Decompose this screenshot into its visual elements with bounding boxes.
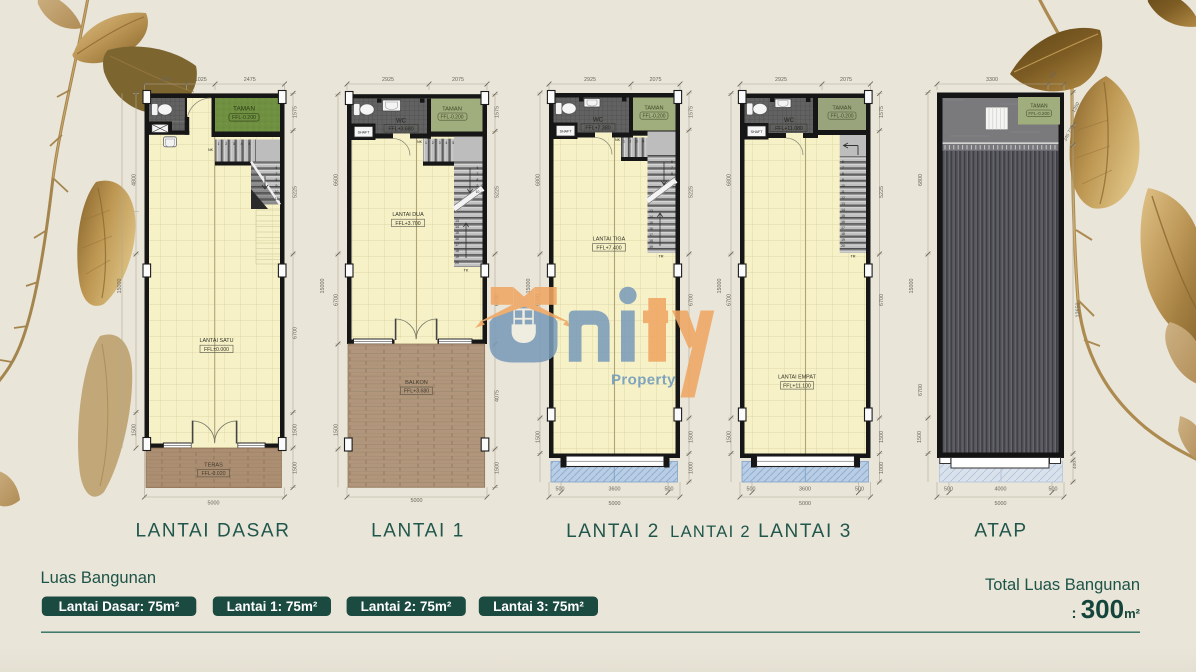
svg-text:16: 16 bbox=[455, 237, 459, 241]
svg-text:15000: 15000 bbox=[909, 279, 915, 294]
svg-text:1500: 1500 bbox=[689, 431, 695, 443]
svg-text:1500: 1500 bbox=[495, 462, 501, 474]
svg-text:LANTAI 2: LANTAI 2 bbox=[566, 521, 660, 542]
svg-text:LANTAI TIGA: LANTAI TIGA bbox=[593, 237, 626, 243]
svg-text:6700: 6700 bbox=[689, 294, 695, 306]
svg-text:9: 9 bbox=[842, 178, 844, 182]
svg-text:17: 17 bbox=[841, 226, 845, 230]
svg-text:TAMAN: TAMAN bbox=[442, 107, 462, 113]
svg-text:3: 3 bbox=[636, 140, 638, 144]
svg-text:FFL+7.380: FFL+7.380 bbox=[585, 125, 610, 131]
svg-text:1025: 1025 bbox=[195, 77, 207, 83]
svg-text:18: 18 bbox=[841, 232, 845, 236]
svg-text:WC: WC bbox=[784, 118, 795, 124]
svg-text:500: 500 bbox=[1049, 487, 1058, 493]
svg-text:WC: WC bbox=[396, 119, 407, 125]
svg-text:1500: 1500 bbox=[535, 431, 541, 443]
svg-text:5225: 5225 bbox=[879, 186, 885, 198]
svg-text:1000: 1000 bbox=[689, 462, 695, 474]
svg-text:6800: 6800 bbox=[535, 174, 541, 186]
svg-text:5225: 5225 bbox=[689, 186, 695, 198]
svg-text:1575: 1575 bbox=[293, 106, 299, 118]
svg-text:12650: 12650 bbox=[1076, 303, 1082, 318]
svg-text:12: 12 bbox=[841, 196, 845, 200]
svg-text:2925: 2925 bbox=[584, 77, 596, 83]
svg-text:5225: 5225 bbox=[495, 186, 501, 198]
svg-text:TAMAN: TAMAN bbox=[644, 106, 663, 112]
svg-text:6: 6 bbox=[671, 160, 673, 164]
svg-text:3300: 3300 bbox=[986, 77, 998, 83]
svg-text:10: 10 bbox=[476, 190, 480, 194]
svg-text:13: 13 bbox=[455, 219, 459, 223]
svg-text:19: 19 bbox=[649, 245, 653, 249]
svg-text:19: 19 bbox=[841, 238, 845, 242]
svg-text:Property: Property bbox=[611, 372, 676, 389]
svg-text:LANTAI 3: LANTAI 3 bbox=[758, 521, 852, 542]
svg-text:LANTAI 2: LANTAI 2 bbox=[670, 523, 751, 541]
svg-text:Lantai 1: 75m²: Lantai 1: 75m² bbox=[227, 599, 318, 614]
svg-text:4075: 4075 bbox=[495, 390, 501, 402]
svg-text:2925: 2925 bbox=[775, 77, 787, 83]
svg-text:6600: 6600 bbox=[333, 174, 339, 186]
svg-text:5000: 5000 bbox=[799, 501, 811, 507]
svg-text:1: 1 bbox=[425, 141, 427, 145]
svg-text:3: 3 bbox=[233, 142, 235, 146]
svg-text:17: 17 bbox=[455, 243, 459, 247]
svg-text:SHAFT: SHAFT bbox=[358, 131, 371, 135]
svg-text:FFL-0.200: FFL-0.200 bbox=[232, 115, 256, 121]
svg-text:2: 2 bbox=[225, 142, 227, 146]
svg-text:6700: 6700 bbox=[333, 294, 339, 306]
svg-text:13: 13 bbox=[841, 202, 845, 206]
svg-text:5000: 5000 bbox=[609, 501, 621, 507]
svg-text:4: 4 bbox=[642, 140, 644, 144]
svg-text:500: 500 bbox=[747, 487, 756, 493]
svg-text:FFL-0.200: FFL-0.200 bbox=[440, 115, 463, 121]
svg-text:500: 500 bbox=[944, 487, 953, 493]
svg-text:20: 20 bbox=[841, 244, 845, 248]
svg-text:4000: 4000 bbox=[995, 487, 1007, 493]
svg-text:6: 6 bbox=[842, 160, 844, 164]
svg-text:4: 4 bbox=[445, 141, 447, 145]
svg-text:8: 8 bbox=[671, 172, 673, 176]
svg-text:FFL+7.400: FFL+7.400 bbox=[596, 245, 621, 251]
svg-text:19: 19 bbox=[455, 255, 459, 259]
svg-text:4800: 4800 bbox=[131, 174, 137, 186]
svg-text:18: 18 bbox=[455, 249, 459, 253]
svg-text:NK: NK bbox=[615, 138, 621, 142]
svg-text:LANTAI SATU: LANTAI SATU bbox=[200, 338, 234, 344]
svg-text:7: 7 bbox=[671, 166, 673, 170]
svg-text:8: 8 bbox=[276, 178, 278, 182]
svg-text:3: 3 bbox=[439, 141, 441, 145]
svg-text:TAMAN: TAMAN bbox=[1030, 104, 1048, 110]
svg-text:TR: TR bbox=[850, 255, 855, 259]
svg-text:SHAFT: SHAFT bbox=[560, 130, 573, 134]
svg-text:5225: 5225 bbox=[293, 186, 299, 198]
svg-text:6700: 6700 bbox=[293, 327, 299, 339]
svg-text:1500: 1500 bbox=[726, 431, 732, 443]
svg-text:14: 14 bbox=[649, 215, 653, 219]
svg-text:FFL+3.700: FFL+3.700 bbox=[395, 221, 420, 227]
svg-text:2475: 2475 bbox=[244, 77, 256, 83]
svg-text:1: 1 bbox=[623, 140, 625, 144]
svg-text:ATAP: ATAP bbox=[974, 521, 1027, 542]
svg-text:1500: 1500 bbox=[293, 424, 299, 436]
svg-text:6700: 6700 bbox=[879, 294, 885, 306]
svg-text:9: 9 bbox=[477, 184, 479, 188]
svg-text:17: 17 bbox=[649, 233, 653, 237]
svg-text:FFL-0.200: FFL-0.200 bbox=[1028, 111, 1050, 116]
svg-text:NK: NK bbox=[417, 140, 423, 144]
svg-text:2925: 2925 bbox=[382, 77, 394, 83]
svg-text:15: 15 bbox=[649, 221, 653, 225]
svg-text:15: 15 bbox=[841, 214, 845, 218]
svg-text:FFL+11.080: FFL+11.080 bbox=[775, 126, 803, 132]
svg-text:1000: 1000 bbox=[879, 462, 885, 474]
svg-text:FFL+3.680: FFL+3.680 bbox=[404, 389, 429, 395]
svg-text:LANTAI DUA: LANTAI DUA bbox=[392, 212, 424, 218]
svg-text:Lantai Dasar: 75m²: Lantai Dasar: 75m² bbox=[59, 599, 180, 614]
svg-text:1500: 1500 bbox=[131, 424, 137, 436]
svg-text:16: 16 bbox=[841, 220, 845, 224]
svg-text:11: 11 bbox=[275, 197, 279, 201]
svg-text:1500: 1500 bbox=[333, 424, 339, 436]
svg-text:2075: 2075 bbox=[650, 77, 662, 83]
svg-text:14: 14 bbox=[841, 208, 845, 212]
svg-text:15000: 15000 bbox=[117, 279, 123, 294]
svg-text:1500: 1500 bbox=[917, 431, 923, 443]
svg-text:LANTAI 1: LANTAI 1 bbox=[371, 521, 465, 542]
svg-text:1575: 1575 bbox=[879, 106, 885, 118]
svg-text:15000: 15000 bbox=[320, 279, 326, 294]
svg-text:10: 10 bbox=[275, 190, 279, 194]
svg-text:400: 400 bbox=[1072, 461, 1078, 469]
svg-text:FFL-0.020: FFL-0.020 bbox=[202, 471, 226, 477]
svg-text:5000: 5000 bbox=[411, 498, 423, 504]
svg-text:1500: 1500 bbox=[160, 77, 172, 83]
svg-text:6700: 6700 bbox=[726, 294, 732, 306]
svg-text:LANTAI DASAR: LANTAI DASAR bbox=[135, 521, 290, 542]
svg-text:1575: 1575 bbox=[495, 106, 501, 118]
svg-text:3600: 3600 bbox=[609, 487, 621, 493]
svg-text:5000: 5000 bbox=[995, 501, 1007, 507]
svg-text:14: 14 bbox=[455, 225, 459, 229]
svg-text:5: 5 bbox=[248, 142, 250, 146]
svg-text:1500: 1500 bbox=[293, 462, 299, 474]
svg-text:LANTAI EMPAT: LANTAI EMPAT bbox=[778, 375, 816, 381]
svg-text:FFL-0.200: FFL-0.200 bbox=[830, 114, 853, 120]
svg-text:500: 500 bbox=[665, 487, 674, 493]
svg-text:20: 20 bbox=[455, 261, 459, 265]
svg-text:1575: 1575 bbox=[689, 106, 695, 118]
svg-text:Luas Bangunan: Luas Bangunan bbox=[41, 569, 157, 587]
svg-text:Total Luas Bangunan: Total Luas Bangunan bbox=[985, 576, 1140, 594]
svg-text:2: 2 bbox=[629, 140, 631, 144]
svg-text:TR: TR bbox=[658, 255, 663, 259]
svg-text:6: 6 bbox=[477, 166, 479, 170]
svg-text:8: 8 bbox=[842, 172, 844, 176]
svg-text:16: 16 bbox=[649, 227, 653, 231]
svg-text:8: 8 bbox=[477, 178, 479, 182]
svg-text:5000: 5000 bbox=[208, 501, 220, 507]
svg-text:2: 2 bbox=[432, 141, 434, 145]
svg-text:WC: WC bbox=[593, 118, 604, 124]
svg-text:FFL+11.100: FFL+11.100 bbox=[783, 383, 811, 389]
svg-text:500: 500 bbox=[556, 487, 565, 493]
svg-text:6800: 6800 bbox=[918, 174, 924, 186]
svg-text:NK: NK bbox=[208, 148, 214, 152]
svg-text:10: 10 bbox=[841, 184, 845, 188]
svg-text:Lantai 3: 75m²: Lantai 3: 75m² bbox=[493, 599, 584, 614]
svg-text:7: 7 bbox=[276, 172, 278, 176]
svg-text:6800: 6800 bbox=[726, 174, 732, 186]
svg-text:2075: 2075 bbox=[452, 77, 464, 83]
svg-text:FFL-0.200: FFL-0.200 bbox=[642, 114, 665, 120]
svg-text:500: 500 bbox=[855, 487, 864, 493]
svg-text:4: 4 bbox=[241, 142, 243, 146]
svg-text:FFL±0.000: FFL±0.000 bbox=[204, 347, 229, 353]
svg-text:TK: TK bbox=[464, 269, 469, 273]
svg-text:1: 1 bbox=[218, 142, 220, 146]
svg-text:FFL+3.680: FFL+3.680 bbox=[388, 126, 413, 132]
svg-text:6: 6 bbox=[276, 166, 278, 170]
svg-text:TERAS: TERAS bbox=[204, 463, 223, 469]
svg-text:TAMAN: TAMAN bbox=[233, 106, 255, 113]
svg-text:11: 11 bbox=[841, 190, 845, 194]
svg-text:6700: 6700 bbox=[918, 384, 924, 396]
svg-text:9: 9 bbox=[276, 184, 278, 188]
svg-text:18: 18 bbox=[649, 239, 653, 243]
svg-text:SHAFT: SHAFT bbox=[751, 130, 764, 134]
svg-text:TAMAN: TAMAN bbox=[832, 106, 851, 112]
svg-text:5: 5 bbox=[452, 141, 454, 145]
svg-text:7: 7 bbox=[477, 172, 479, 176]
svg-text:13: 13 bbox=[649, 209, 653, 213]
svg-text:1500: 1500 bbox=[879, 431, 885, 443]
svg-text:2075: 2075 bbox=[840, 77, 852, 83]
svg-text:3600: 3600 bbox=[799, 487, 811, 493]
svg-text:Lantai 2: 75m²: Lantai 2: 75m² bbox=[361, 599, 452, 614]
svg-text:BALKON: BALKON bbox=[405, 380, 428, 386]
svg-text:15000: 15000 bbox=[717, 279, 723, 294]
svg-text:7: 7 bbox=[842, 166, 844, 170]
svg-text:15: 15 bbox=[455, 231, 459, 235]
